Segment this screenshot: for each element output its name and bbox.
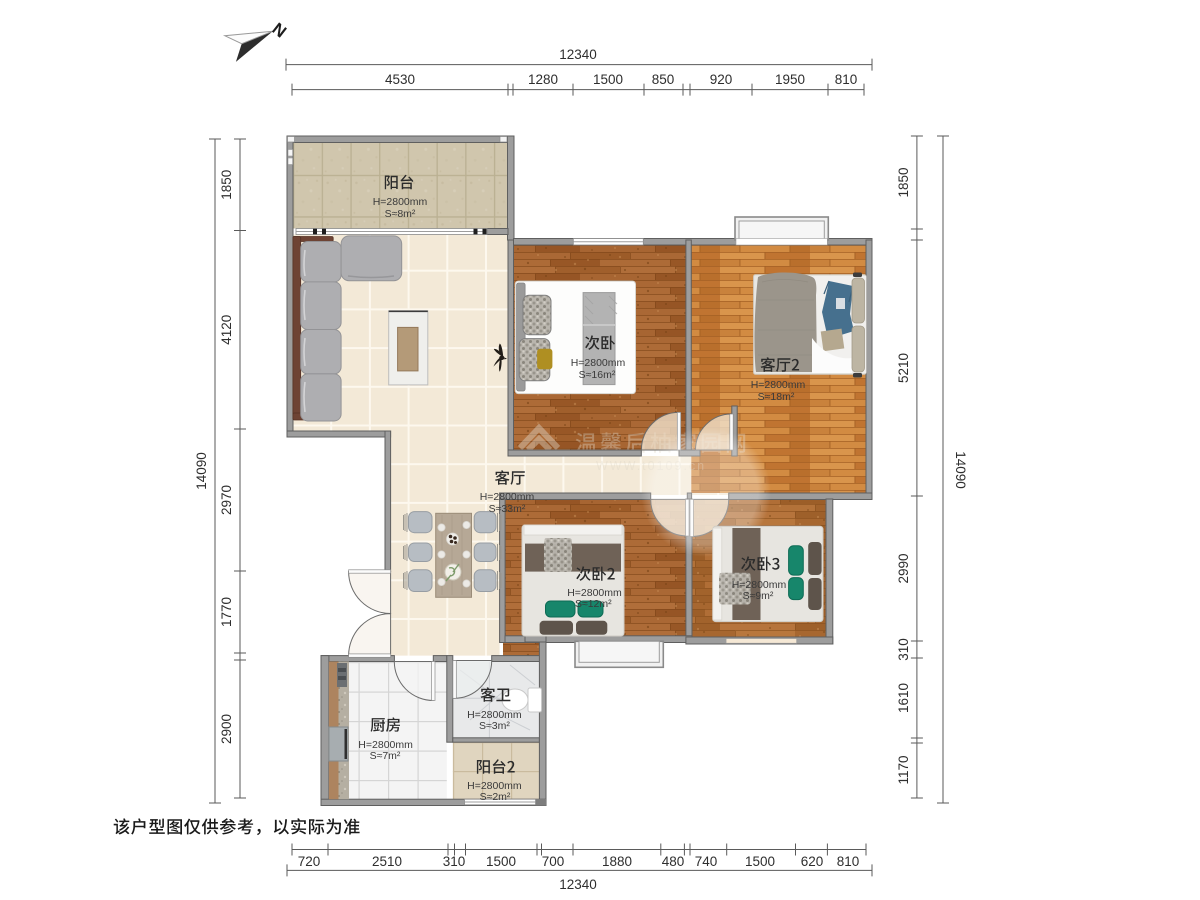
svg-text:720: 720 [298, 854, 321, 869]
svg-text:480: 480 [662, 854, 685, 869]
svg-text:1170: 1170 [896, 755, 911, 784]
svg-text:4120: 4120 [219, 315, 234, 345]
svg-text:1500: 1500 [486, 854, 516, 869]
svg-text:S≈33m²: S≈33m² [489, 503, 526, 515]
svg-text:S≈18m²: S≈18m² [758, 391, 795, 403]
svg-text:12340: 12340 [559, 47, 597, 62]
svg-text:14090: 14090 [194, 452, 209, 490]
svg-text:S≈7m²: S≈7m² [370, 750, 401, 762]
svg-text:2970: 2970 [219, 485, 234, 515]
svg-text:5210: 5210 [896, 353, 911, 383]
svg-text:1610: 1610 [896, 683, 911, 713]
svg-text:2990: 2990 [896, 553, 911, 583]
svg-text:1880: 1880 [602, 854, 632, 869]
svg-text:810: 810 [837, 854, 860, 869]
svg-text:2510: 2510 [372, 854, 402, 869]
svg-text:14090: 14090 [953, 451, 968, 489]
svg-text:1500: 1500 [745, 854, 775, 869]
svg-text:S≈3m²: S≈3m² [479, 720, 510, 732]
svg-text:620: 620 [801, 854, 824, 869]
svg-text:H=2800mm: H=2800mm [751, 379, 806, 391]
svg-text:850: 850 [652, 72, 675, 87]
svg-text:4530: 4530 [385, 72, 415, 87]
svg-text:700: 700 [542, 854, 565, 869]
svg-text:S≈8m²: S≈8m² [385, 208, 416, 220]
svg-text:1280: 1280 [528, 72, 558, 87]
svg-text:H=2800mm: H=2800mm [480, 491, 535, 503]
svg-text:1500: 1500 [593, 72, 623, 87]
svg-text:1850: 1850 [219, 170, 234, 200]
svg-text:310: 310 [443, 854, 466, 869]
svg-text:1850: 1850 [896, 167, 911, 197]
svg-text:S≈2m²: S≈2m² [480, 791, 511, 803]
svg-text:2900: 2900 [219, 714, 234, 744]
svg-text:310: 310 [896, 638, 911, 661]
svg-text:S≈9m²: S≈9m² [743, 590, 774, 602]
svg-text:H=2800mm: H=2800mm [571, 357, 626, 369]
svg-text:S≈12m²: S≈12m² [575, 598, 612, 610]
svg-text:S≈16m²: S≈16m² [579, 369, 616, 381]
svg-text:H=2800mm: H=2800mm [373, 196, 428, 208]
svg-text:740: 740 [695, 854, 718, 869]
svg-text:N: N [268, 19, 289, 42]
svg-text:1950: 1950 [775, 72, 805, 87]
svg-text:920: 920 [710, 72, 733, 87]
svg-text:810: 810 [835, 72, 858, 87]
svg-text:12340: 12340 [559, 877, 597, 892]
svg-text:1770: 1770 [219, 597, 234, 627]
